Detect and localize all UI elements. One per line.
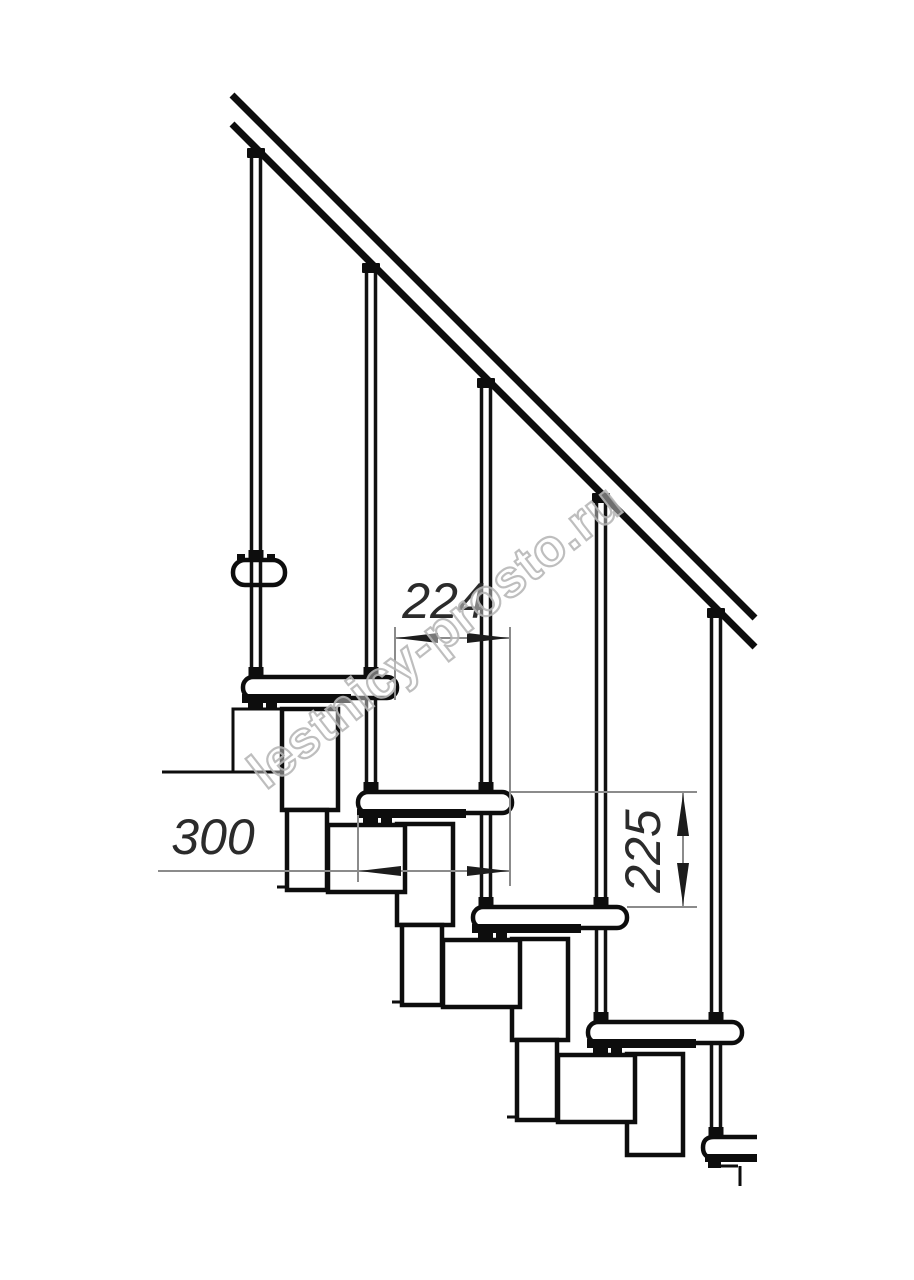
dimension-225: 225 (510, 792, 697, 907)
module-box-lower-3 (517, 1040, 557, 1120)
handrail-top-line (232, 95, 755, 618)
module-box-lower-2 (402, 925, 442, 1005)
module-box-wide-4 (558, 1055, 635, 1122)
tread-5-cut (703, 1137, 757, 1168)
staircase-drawing: 224 300 225 lestnicy-prosto.ru (0, 0, 914, 1280)
dim-300-label: 300 (171, 809, 255, 865)
module-box-wide-2 (328, 825, 405, 892)
baluster-1 (252, 157, 261, 679)
module-box-wide-3 (443, 940, 520, 1007)
dim-300-arrow-right (467, 866, 509, 876)
module-box-lower-1 (287, 810, 327, 890)
baluster-4 (597, 502, 606, 1024)
watermark-text: lestnicy-prosto.ru (238, 473, 634, 800)
dim-225-label: 225 (615, 809, 671, 894)
staircase-drawing-page: 224 300 225 lestnicy-prosto.ru (0, 0, 914, 1280)
dim-225-arrow-up (677, 794, 689, 836)
baluster-5 (712, 617, 721, 1139)
dim-225-arrow-down (677, 863, 689, 905)
baluster-3 (482, 387, 491, 909)
step5-end-lines (710, 1166, 740, 1186)
